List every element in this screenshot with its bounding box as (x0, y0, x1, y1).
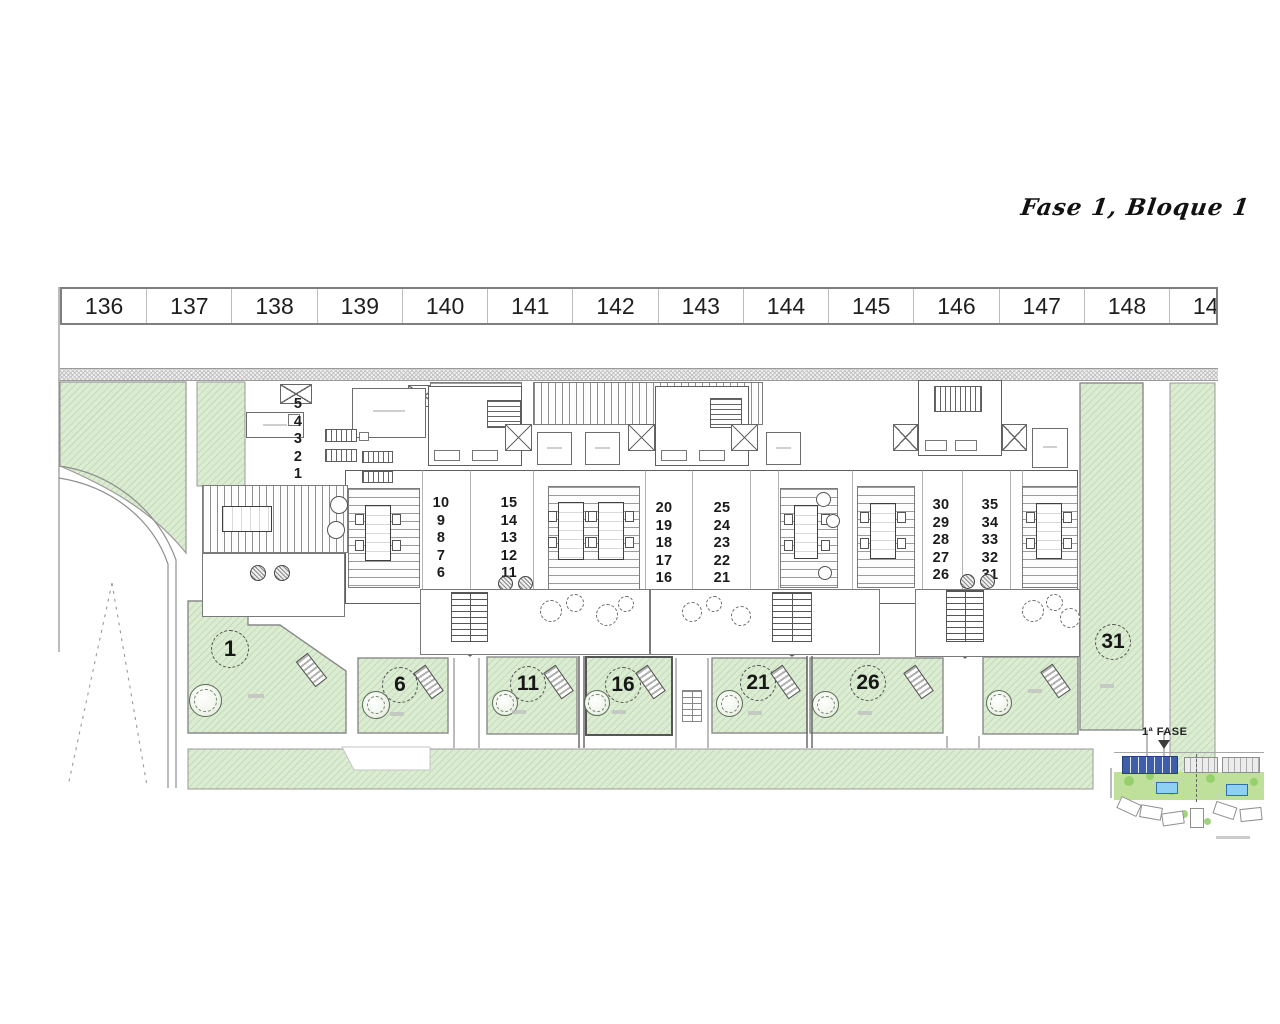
parking-row: 1361371381391401411421431441451461471481… (60, 287, 1218, 325)
unit-stack-16-20: 20 19 18 17 16 (649, 500, 679, 588)
window-sill (955, 440, 977, 451)
wall-line (533, 470, 534, 604)
minimap-phase-divider (1196, 754, 1197, 802)
parking-space-cell: 138 (232, 289, 317, 323)
parking-space-number: 136 (85, 293, 123, 320)
road-notch (342, 747, 430, 770)
minimap-caption-line (1216, 836, 1250, 839)
patio-table-icon (794, 505, 818, 559)
sun-bed-icon (362, 451, 393, 463)
area-label-mark (1028, 689, 1042, 693)
room (585, 432, 620, 465)
minimap-side-mark (1110, 768, 1112, 798)
table-chair-icon (625, 511, 634, 522)
minimap-house (1213, 801, 1238, 820)
ladder-stairs-icon (682, 690, 702, 722)
table-chair-icon (355, 514, 364, 525)
round-planter-icon (818, 566, 832, 580)
table-chair-icon (784, 540, 793, 551)
area-label-mark (390, 712, 404, 716)
patio-table-icon (1036, 503, 1062, 559)
parking-space-cell: 140 (403, 289, 488, 323)
tree-icon (716, 690, 743, 717)
garden-plot-31-area (1080, 383, 1143, 730)
garden-chair-icon (731, 606, 751, 626)
unit-stack-left: 5 4 3 2 1 (283, 396, 313, 484)
table-chair-icon (392, 540, 401, 551)
tree-icon (362, 691, 390, 719)
sun-bed-icon (325, 449, 357, 462)
parking-space-number: 147 (1023, 293, 1061, 320)
area-label-mark (612, 710, 626, 714)
grill-icon (980, 574, 995, 589)
table-chair-icon (548, 537, 557, 548)
parking-space-number: 148 (1108, 293, 1146, 320)
parking-space-cell: 146 (914, 289, 999, 323)
round-planter-icon (816, 492, 831, 507)
table-chair-icon (588, 511, 597, 522)
wall-line (645, 470, 646, 604)
parking-space-cell: 143 (659, 289, 744, 323)
tree-icon (584, 690, 610, 716)
garden-chair-icon (1046, 594, 1063, 611)
parking-space-cell: 142 (573, 289, 658, 323)
plan-title: Fase 1, Bloque 1 (1020, 194, 1252, 221)
room (1032, 428, 1068, 468)
wall-line (922, 470, 923, 604)
grill-icon (960, 574, 975, 589)
parking-space-number: 146 (937, 293, 975, 320)
wall-line (750, 470, 751, 604)
garden-circle-1: 1 (211, 630, 249, 668)
minimap-tree-blob (1250, 778, 1258, 786)
garden-area-column (197, 382, 245, 486)
room (766, 432, 801, 465)
unit-stack-21-25: 25 24 23 22 21 (707, 500, 737, 588)
table-chair-icon (588, 537, 597, 548)
tree-icon (986, 690, 1012, 716)
table-chair-icon (548, 511, 557, 522)
ladder-stairs-icon (451, 592, 488, 642)
garden-chair-icon (596, 604, 618, 626)
parking-space-cell: 139 (318, 289, 403, 323)
terrace-B (650, 589, 880, 655)
ladder-stairs-icon (946, 590, 984, 642)
skylight-icon (1002, 424, 1027, 451)
room (352, 388, 426, 438)
minimap-building-block (1184, 757, 1218, 773)
ladder-stairs-icon (772, 592, 812, 642)
minimap-pool (1226, 784, 1248, 796)
table-chair-icon (821, 540, 830, 551)
parking-space-cell: 145 (829, 289, 914, 323)
window-sill (925, 440, 947, 451)
minimap-phase1-block (1122, 756, 1178, 774)
site-plan-canvas: Fase 1, Bloque 1 13613713813914014114214… (0, 0, 1280, 1024)
window-sill (661, 450, 687, 461)
minimap-pool (1156, 782, 1178, 794)
unit-stack-26-30: 30 29 28 27 26 (926, 497, 956, 585)
patio-table-icon (870, 503, 896, 559)
garden-circle-31: 31 (1095, 624, 1131, 660)
parking-space-number: 138 (255, 293, 293, 320)
garden-chair-icon (706, 596, 722, 612)
table-chair-icon (784, 514, 793, 525)
table-chair-icon (1026, 512, 1035, 523)
parking-space-number: 144 (767, 293, 805, 320)
parking-space-cell: 148 (1085, 289, 1170, 323)
left-terrace (202, 553, 345, 617)
minimap-building-block (1222, 757, 1260, 773)
parking-space-cell: 136 (62, 289, 147, 323)
parking-space-cell: 141 (488, 289, 573, 323)
table-chair-icon (897, 512, 906, 523)
patio-table-icon (222, 506, 272, 532)
round-planter-icon (327, 521, 345, 539)
table-chair-icon (1063, 538, 1072, 549)
area-label-mark (248, 694, 264, 698)
side-table-icon (359, 432, 369, 441)
minimap-tree-blob (1124, 776, 1134, 786)
parking-space-cell: 147 (1000, 289, 1085, 323)
minimap-house (1239, 807, 1262, 822)
sun-bed-icon (325, 429, 357, 442)
garden-chair-icon (1060, 608, 1080, 628)
minimap-house (1161, 811, 1185, 827)
garden-chair-icon (682, 602, 702, 622)
skylight-icon (731, 424, 758, 451)
parking-space-number: 137 (170, 293, 208, 320)
wall-line (852, 470, 853, 604)
table-chair-icon (1026, 538, 1035, 549)
wall-line (778, 470, 779, 604)
round-planter-icon (826, 514, 840, 528)
skylight-icon (628, 424, 655, 451)
parking-space-number: 143 (682, 293, 720, 320)
garden-strip-bottom (188, 749, 1093, 789)
garden-area-top-left (60, 382, 186, 553)
window-sill (472, 450, 498, 461)
patio-table-icon (558, 502, 584, 560)
window-sill (434, 450, 460, 461)
wall-line (1010, 470, 1011, 604)
parking-space-number: 145 (852, 293, 890, 320)
minimap-house (1190, 808, 1204, 828)
parking-space-cell: 144 (744, 289, 829, 323)
wall-line (692, 470, 693, 604)
minimap-phase-label: 1ª FASE (1142, 726, 1187, 738)
parking-space-number: 140 (426, 293, 464, 320)
round-planter-icon (330, 496, 348, 514)
parking-space-number: 149 (1170, 293, 1216, 320)
minimap-top-line (1114, 752, 1264, 753)
parking-space-cell: 137 (147, 289, 232, 323)
unit-stack-11-15: 15 14 13 12 11 (494, 495, 524, 583)
grill-icon (274, 565, 290, 581)
area-label-mark (858, 711, 872, 715)
table-chair-icon (392, 514, 401, 525)
garden-chair-icon (1022, 600, 1044, 622)
grill-icon (250, 565, 266, 581)
parking-space-number: 141 (511, 293, 549, 320)
garden-circle-21: 21 (740, 665, 776, 701)
garden-circle-26: 26 (850, 665, 886, 701)
minimap-tree-blob (1206, 774, 1215, 783)
patio-table-icon (598, 502, 624, 560)
unit-stack-31-35: 35 34 33 32 31 (975, 497, 1005, 585)
garden-chair-icon (618, 596, 634, 612)
minimap: 1ª FASE (1108, 724, 1268, 842)
wall-line (422, 470, 423, 604)
parking-space-number: 142 (596, 293, 634, 320)
stairs-icon (934, 386, 982, 412)
patio-table-icon (365, 505, 391, 561)
area-label-mark (512, 710, 526, 714)
skylight-icon (893, 424, 918, 451)
garden-chair-icon (540, 600, 562, 622)
table-chair-icon (625, 537, 634, 548)
table-chair-icon (897, 538, 906, 549)
table-chair-icon (860, 538, 869, 549)
table-chair-icon (860, 512, 869, 523)
window-sill (699, 450, 725, 461)
garden-chair-icon (566, 594, 584, 612)
wall-line (470, 470, 471, 604)
parking-space-cell: 149 (1170, 289, 1216, 323)
area-label-mark (1100, 684, 1114, 688)
parking-space-number: 139 (341, 293, 379, 320)
table-chair-icon (1063, 512, 1072, 523)
sun-bed-icon (362, 471, 393, 483)
boundary-hatch-strip (60, 368, 1218, 381)
room (537, 432, 572, 465)
skylight-icon (505, 424, 532, 451)
tree-icon (189, 684, 222, 717)
area-label-mark (748, 711, 762, 715)
tree-icon (812, 691, 839, 718)
unit-stack-6-10: 10 9 8 7 6 (426, 495, 456, 583)
minimap-house (1139, 804, 1163, 821)
table-chair-icon (355, 540, 364, 551)
minimap-tree-blob (1204, 818, 1211, 825)
